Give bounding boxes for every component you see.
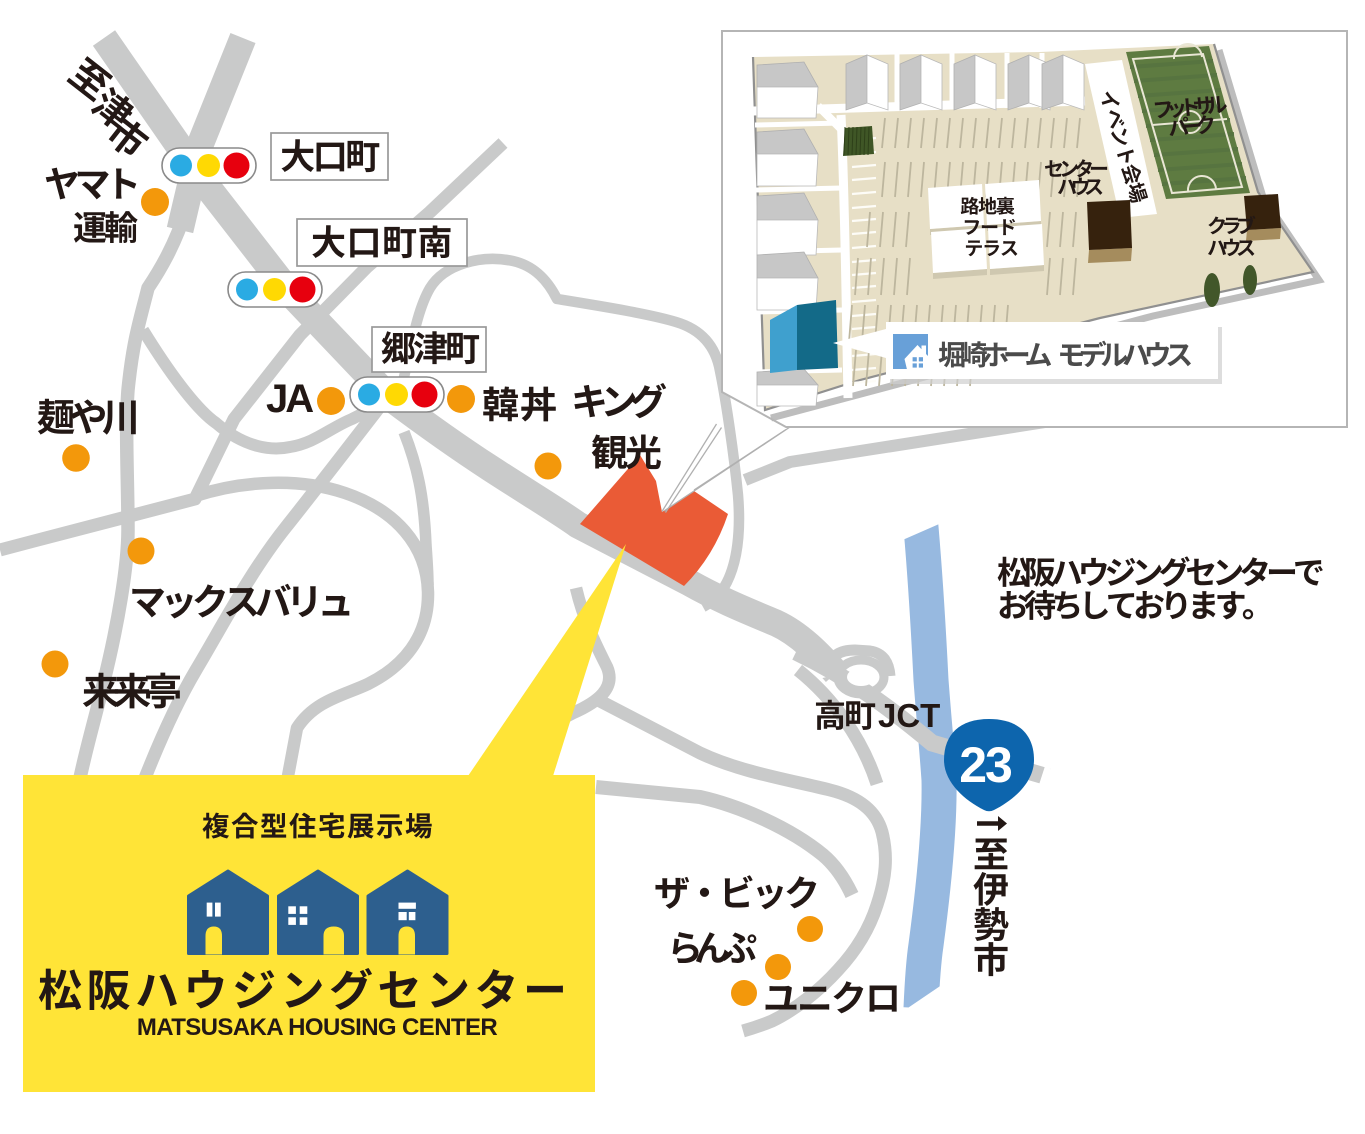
svg-text:MATSUSAKA HOUSING CENTER: MATSUSAKA HOUSING CENTER <box>137 1014 498 1041</box>
svg-text:JCT: JCT <box>878 697 940 734</box>
svg-text:23: 23 <box>959 737 1011 793</box>
svg-text:JA: JA <box>266 377 313 421</box>
